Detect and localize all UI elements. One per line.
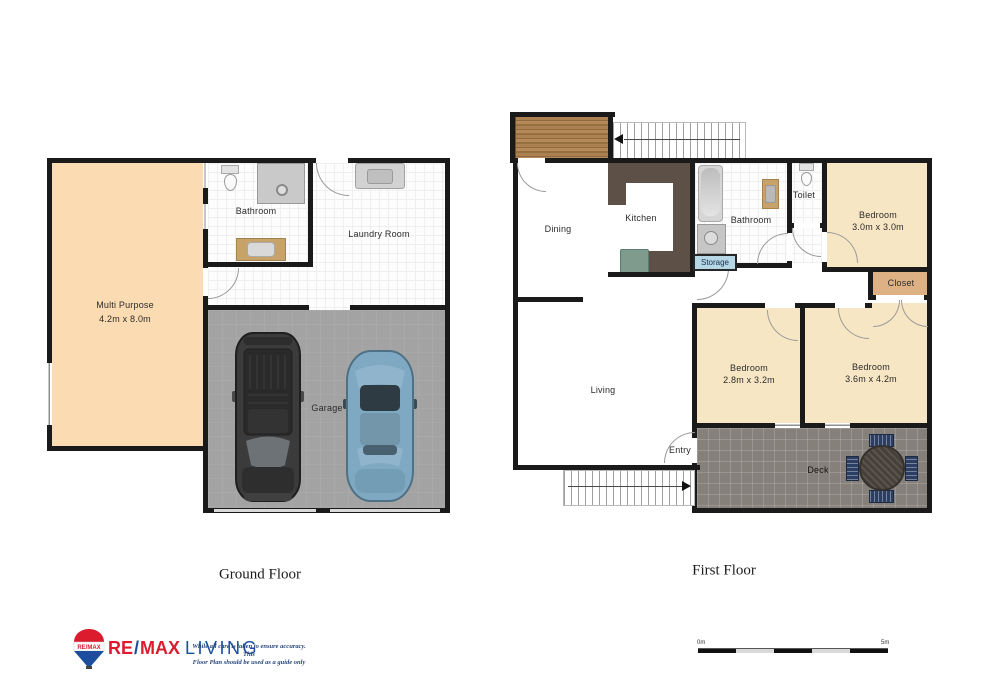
stairs-up-arrow bbox=[614, 134, 623, 144]
scale-start-label: 0m bbox=[697, 640, 705, 646]
label-storage: Storage bbox=[701, 258, 729, 267]
wall bbox=[203, 305, 309, 310]
label-bedroom1-dims: 3.0m x 3.0m bbox=[852, 222, 904, 232]
first-floor-title: First Floor bbox=[692, 563, 756, 580]
wall bbox=[308, 158, 313, 267]
room-storage: Storage bbox=[693, 254, 737, 271]
label-bedroom2: Bedroom bbox=[730, 363, 768, 373]
label-kitchen: Kitchen bbox=[625, 213, 656, 223]
remax-balloon-icon: RE/MAX bbox=[72, 628, 106, 670]
disclaimer-line1: While all care is taken to ensure accura… bbox=[192, 643, 306, 658]
label-ff-bathroom: Bathroom bbox=[731, 215, 772, 225]
stairs-down-arrow bbox=[682, 481, 691, 491]
label-multi-purpose-dims: 4.2m x 8.0m bbox=[99, 314, 151, 324]
label-gf-bathroom: Bathroom bbox=[236, 206, 277, 216]
label-bedroom1: Bedroom bbox=[859, 210, 897, 220]
wall bbox=[608, 112, 613, 163]
label-garage: Garage bbox=[311, 403, 342, 413]
wall bbox=[927, 158, 932, 513]
disclaimer-line2: Floor Plan should be used as a guide onl… bbox=[193, 659, 306, 666]
window bbox=[775, 423, 800, 428]
toilet-tank bbox=[221, 165, 239, 174]
label-multi-purpose: Multi Purpose bbox=[96, 300, 154, 310]
label-bedroom2-dims: 2.8m x 3.2m bbox=[723, 375, 775, 385]
scale-end-label: 5m bbox=[881, 640, 889, 646]
label-deck: Deck bbox=[807, 465, 828, 475]
window bbox=[825, 423, 850, 428]
kitchen-counter-top bbox=[608, 163, 695, 183]
kitchen-counter-bottom bbox=[646, 251, 673, 273]
shower-head bbox=[276, 184, 288, 196]
wall bbox=[350, 305, 450, 310]
wall bbox=[510, 112, 615, 117]
wall bbox=[510, 112, 515, 163]
deck-chair-right bbox=[905, 456, 918, 481]
stairs-direction-line bbox=[624, 139, 740, 140]
disclaimer: While all care is taken to ensure accura… bbox=[190, 643, 308, 667]
logo-re: RE bbox=[108, 638, 133, 658]
label-laundry: Laundry Room bbox=[348, 229, 409, 239]
scale-bar bbox=[698, 648, 888, 653]
window bbox=[47, 363, 52, 425]
wall bbox=[608, 272, 695, 277]
deck-table bbox=[859, 445, 905, 491]
stairs-lower bbox=[563, 470, 695, 506]
floor-plan-page: Multi Purpose 4.2m x 8.0m Bathroom Laund… bbox=[0, 0, 1000, 679]
wall bbox=[822, 267, 932, 272]
wall bbox=[445, 158, 450, 513]
wall bbox=[47, 158, 450, 163]
label-dining: Dining bbox=[545, 224, 572, 234]
car-blue-icon bbox=[343, 349, 417, 503]
wall bbox=[513, 158, 932, 163]
label-living: Living bbox=[591, 385, 616, 395]
laundry-sink-basin bbox=[367, 169, 393, 184]
bathtub-basin bbox=[701, 168, 720, 216]
label-toilet: Toilet bbox=[793, 190, 815, 200]
vanity-sink bbox=[247, 242, 275, 257]
balcony bbox=[515, 117, 609, 158]
wall bbox=[787, 158, 792, 228]
window bbox=[203, 163, 208, 188]
ff-vanity-sink bbox=[704, 231, 718, 245]
door-opening bbox=[214, 509, 316, 512]
wall bbox=[513, 297, 583, 302]
stairs-upper bbox=[612, 122, 746, 160]
wall bbox=[800, 303, 805, 428]
label-closet: Closet bbox=[888, 278, 915, 288]
wall bbox=[692, 423, 932, 428]
label-entry: Entry bbox=[669, 445, 691, 455]
deck-chair-left bbox=[846, 456, 859, 481]
wall bbox=[203, 446, 208, 513]
suv-dark-icon bbox=[232, 331, 304, 505]
ground-floor-title: Ground Floor bbox=[219, 567, 301, 584]
stairs-direction-line bbox=[568, 486, 682, 487]
ff-toilet-tank bbox=[799, 163, 814, 171]
wall bbox=[203, 262, 313, 267]
logo-max: MAX bbox=[140, 638, 180, 658]
label-bedroom3: Bedroom bbox=[852, 362, 890, 372]
wall bbox=[692, 508, 932, 513]
window bbox=[203, 204, 208, 229]
label-bedroom3-dims: 3.6m x 4.2m bbox=[845, 374, 897, 384]
deck-chair-bottom bbox=[869, 490, 894, 503]
wall bbox=[513, 158, 518, 470]
door-opening bbox=[765, 303, 795, 308]
balloon-text: RE/MAX bbox=[77, 645, 100, 651]
door-opening bbox=[330, 509, 440, 512]
wall bbox=[47, 446, 208, 451]
logo-slash: / bbox=[133, 638, 140, 658]
kitchen-counter-left bbox=[608, 183, 626, 205]
ff-basin bbox=[765, 185, 776, 203]
